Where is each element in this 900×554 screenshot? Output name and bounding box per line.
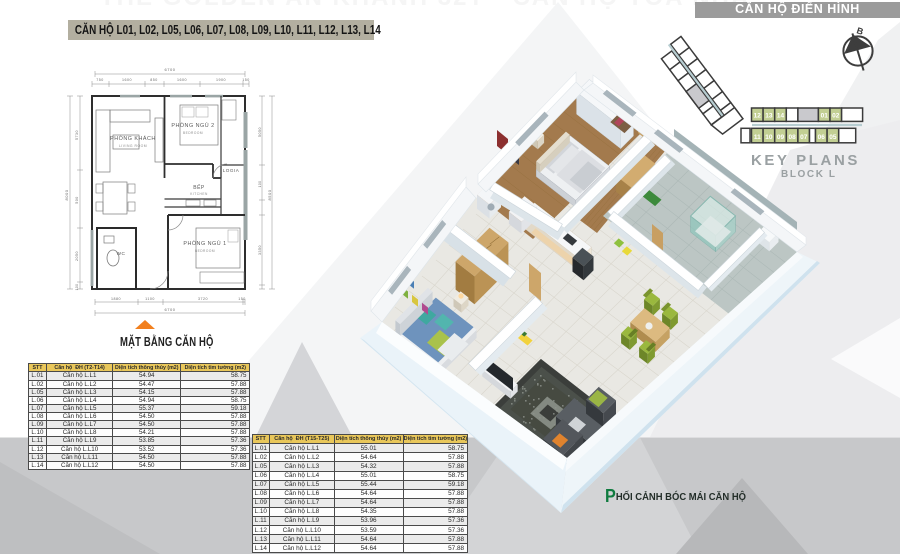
svg-text:B: B bbox=[855, 25, 865, 37]
